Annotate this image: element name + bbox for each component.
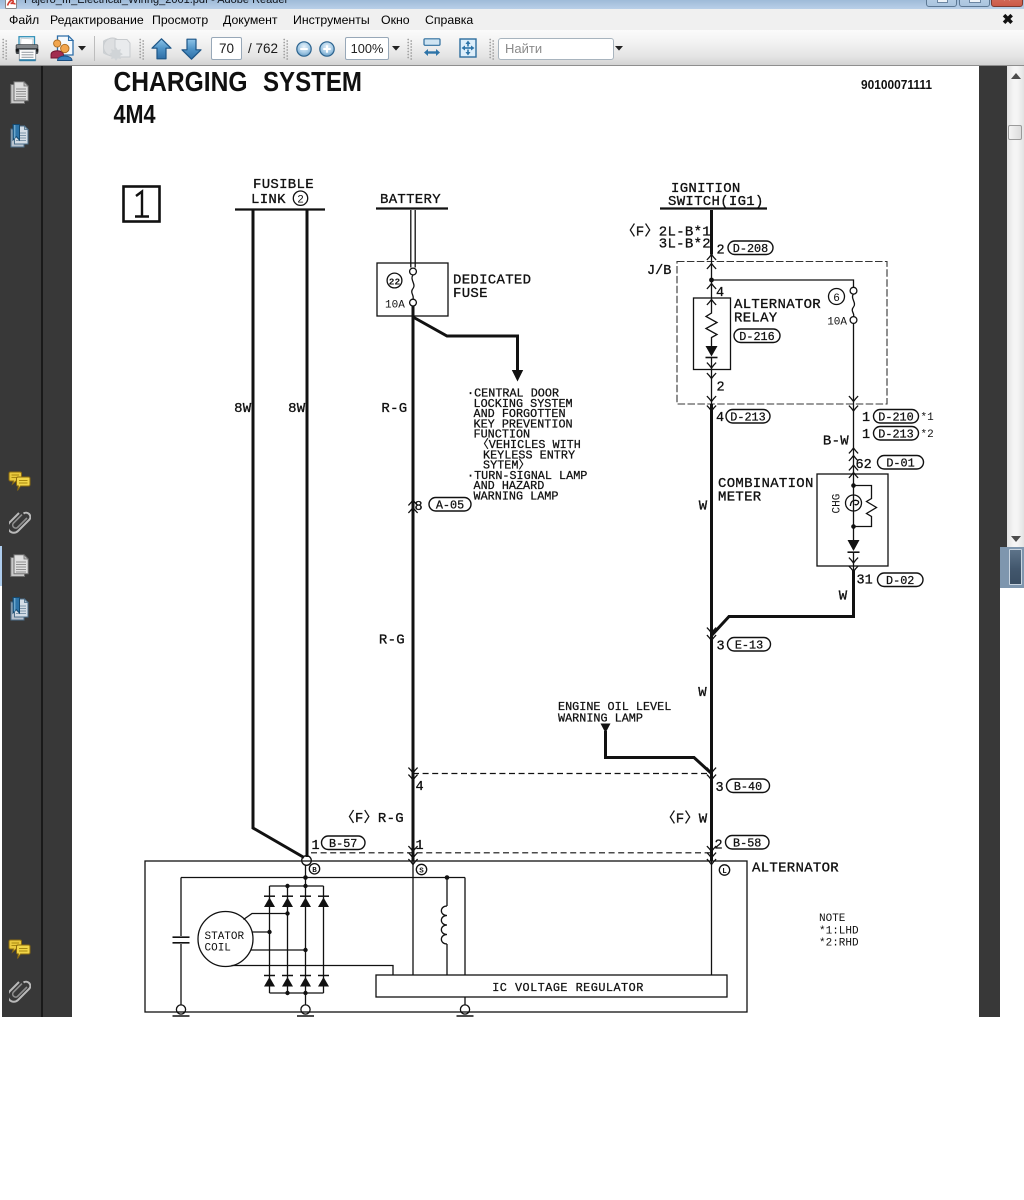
svg-text:3L-B*2: 3L-B*2 <box>659 237 711 253</box>
svg-text:CHARGING: CHARGING <box>114 66 248 97</box>
svg-text:22: 22 <box>389 276 401 287</box>
svg-text:B-W: B-W <box>823 434 849 450</box>
svg-text:*1: *1 <box>921 412 935 424</box>
svg-text:*2:RHD: *2:RHD <box>819 938 859 950</box>
svg-text:4: 4 <box>416 780 424 795</box>
svg-text:B-58: B-58 <box>733 837 761 851</box>
svg-text:COIL: COIL <box>205 943 231 955</box>
svg-text:D-208: D-208 <box>733 242 768 256</box>
svg-text:STATOR: STATOR <box>205 931 245 943</box>
svg-text:METER: METER <box>718 490 762 506</box>
svg-text:B: B <box>312 867 317 875</box>
svg-text:6: 6 <box>833 293 840 305</box>
svg-text:4M4: 4M4 <box>114 99 156 129</box>
svg-text:3: 3 <box>716 781 724 796</box>
svg-text:8: 8 <box>415 500 423 515</box>
svg-text:SYSTEM: SYSTEM <box>263 66 362 97</box>
svg-text:RELAY: RELAY <box>734 311 778 327</box>
svg-text:WARNING LAMP: WARNING LAMP <box>558 712 643 726</box>
svg-text:IC VOLTAGE REGULATOR: IC VOLTAGE REGULATOR <box>492 981 644 995</box>
svg-text:R-G: R-G <box>381 401 407 417</box>
svg-text:D-02: D-02 <box>886 574 914 588</box>
svg-text:8W: 8W <box>234 401 252 417</box>
svg-text:1: 1 <box>312 839 320 854</box>
svg-text:R-G: R-G <box>379 633 405 649</box>
svg-text:D-216: D-216 <box>739 330 774 344</box>
svg-text:1: 1 <box>862 428 870 443</box>
svg-text:W: W <box>699 499 708 515</box>
svg-text:CHG: CHG <box>832 494 844 514</box>
svg-text:NOTE: NOTE <box>819 913 846 925</box>
svg-text:〈F〉W: 〈F〉W <box>661 811 707 828</box>
svg-text:1: 1 <box>862 411 870 426</box>
svg-text:90100071111: 90100071111 <box>861 77 932 92</box>
svg-text:〈F〉R-G: 〈F〉R-G <box>341 810 404 827</box>
svg-text:E-13: E-13 <box>735 639 763 653</box>
svg-text:FUSIBLE: FUSIBLE <box>253 177 314 193</box>
svg-text:D-213: D-213 <box>878 428 913 442</box>
svg-text:62: 62 <box>856 458 872 473</box>
svg-text:D-213: D-213 <box>730 411 765 425</box>
svg-text:W: W <box>839 589 848 605</box>
svg-text:4: 4 <box>716 286 724 301</box>
svg-text:W: W <box>698 685 707 701</box>
svg-text:10A: 10A <box>827 317 847 329</box>
svg-text:2: 2 <box>717 244 725 259</box>
svg-text:ALTERNATOR: ALTERNATOR <box>752 861 839 877</box>
svg-text:10A: 10A <box>385 300 405 312</box>
svg-text:D-210: D-210 <box>878 411 913 425</box>
svg-text:B-57: B-57 <box>329 837 357 851</box>
svg-text:B-40: B-40 <box>734 780 762 794</box>
svg-text:4: 4 <box>716 411 724 426</box>
svg-text:3: 3 <box>717 640 725 655</box>
svg-text:WARNING LAMP: WARNING LAMP <box>474 490 559 504</box>
svg-text:2: 2 <box>717 381 725 396</box>
svg-text:FUSE: FUSE <box>453 286 488 302</box>
svg-text:2: 2 <box>297 194 304 206</box>
svg-text:BATTERY: BATTERY <box>380 192 441 208</box>
svg-text:J/B: J/B <box>647 264 671 279</box>
svg-text:S: S <box>419 868 424 876</box>
svg-text:*2: *2 <box>921 429 934 441</box>
svg-text:L: L <box>722 868 727 876</box>
svg-text:A-05: A-05 <box>436 499 464 513</box>
svg-text:8W: 8W <box>288 401 306 417</box>
svg-text:*1:LHD: *1:LHD <box>819 926 859 938</box>
svg-text:D-01: D-01 <box>886 457 914 471</box>
svg-text:31: 31 <box>857 574 873 589</box>
svg-text:LINK: LINK <box>251 192 286 208</box>
